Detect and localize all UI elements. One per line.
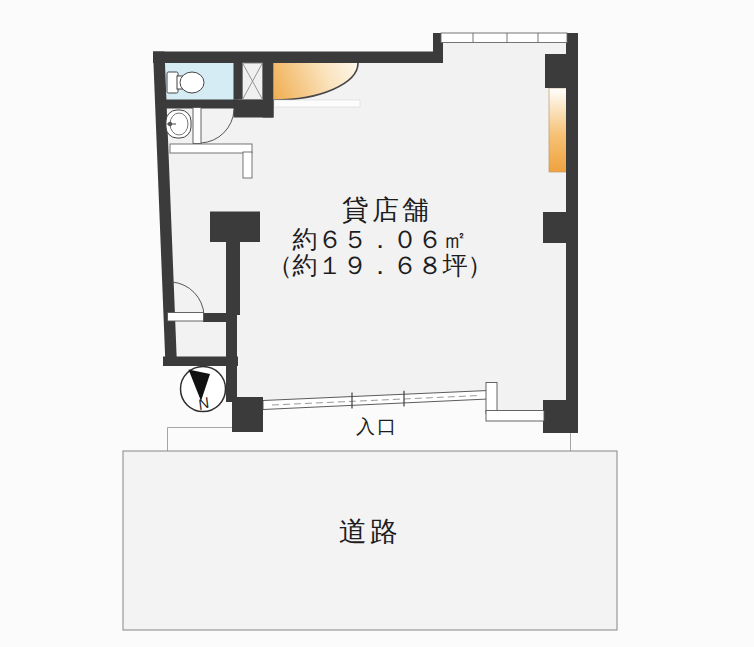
wall-right xyxy=(566,33,578,433)
wall-below-pillar xyxy=(226,242,240,315)
road-area: 道路 xyxy=(123,451,617,630)
area-sqm-label: 約６５．０６㎡ xyxy=(292,225,468,253)
fan-sill-strip xyxy=(274,100,360,107)
window-light-strip xyxy=(549,88,567,172)
entrance-label: 入口 xyxy=(356,416,398,437)
partition-horizontal xyxy=(170,144,252,153)
pillar-top-right xyxy=(545,54,566,88)
pillar-mid-right xyxy=(543,212,567,243)
sink-icon xyxy=(166,110,191,138)
wall-ps-bottom xyxy=(234,100,274,118)
floorplan-canvas: 道路 xyxy=(0,0,754,647)
toilet-icon xyxy=(167,72,204,93)
window-band xyxy=(441,33,567,43)
wall-top xyxy=(153,52,443,64)
wall-small-room-bottom xyxy=(163,357,238,367)
wall-ps-left xyxy=(234,63,243,100)
pillar-bottom-right xyxy=(543,400,578,433)
toilet-tank xyxy=(167,72,178,93)
toilet-room xyxy=(164,63,234,100)
floorplan-svg: 道路 xyxy=(0,0,754,647)
partition-vertical xyxy=(243,152,252,178)
pillar-mid-left xyxy=(210,212,260,243)
washroom-door-leaf xyxy=(193,108,201,144)
toilet-bowl xyxy=(180,72,204,93)
sink-drain xyxy=(168,122,172,126)
storefront-end-wall-horizontal xyxy=(486,411,544,422)
back-room-door-leaf xyxy=(168,313,204,322)
property-type-label: 貸店舗 xyxy=(342,195,432,225)
pillar-entrance-left xyxy=(232,397,263,432)
top-window xyxy=(441,33,567,43)
road-label: 道路 xyxy=(339,516,401,547)
area-tsubo-label: （約１９．６８坪） xyxy=(268,251,493,279)
storefront-end-wall-vertical xyxy=(486,383,497,414)
pipe-space xyxy=(243,63,263,100)
